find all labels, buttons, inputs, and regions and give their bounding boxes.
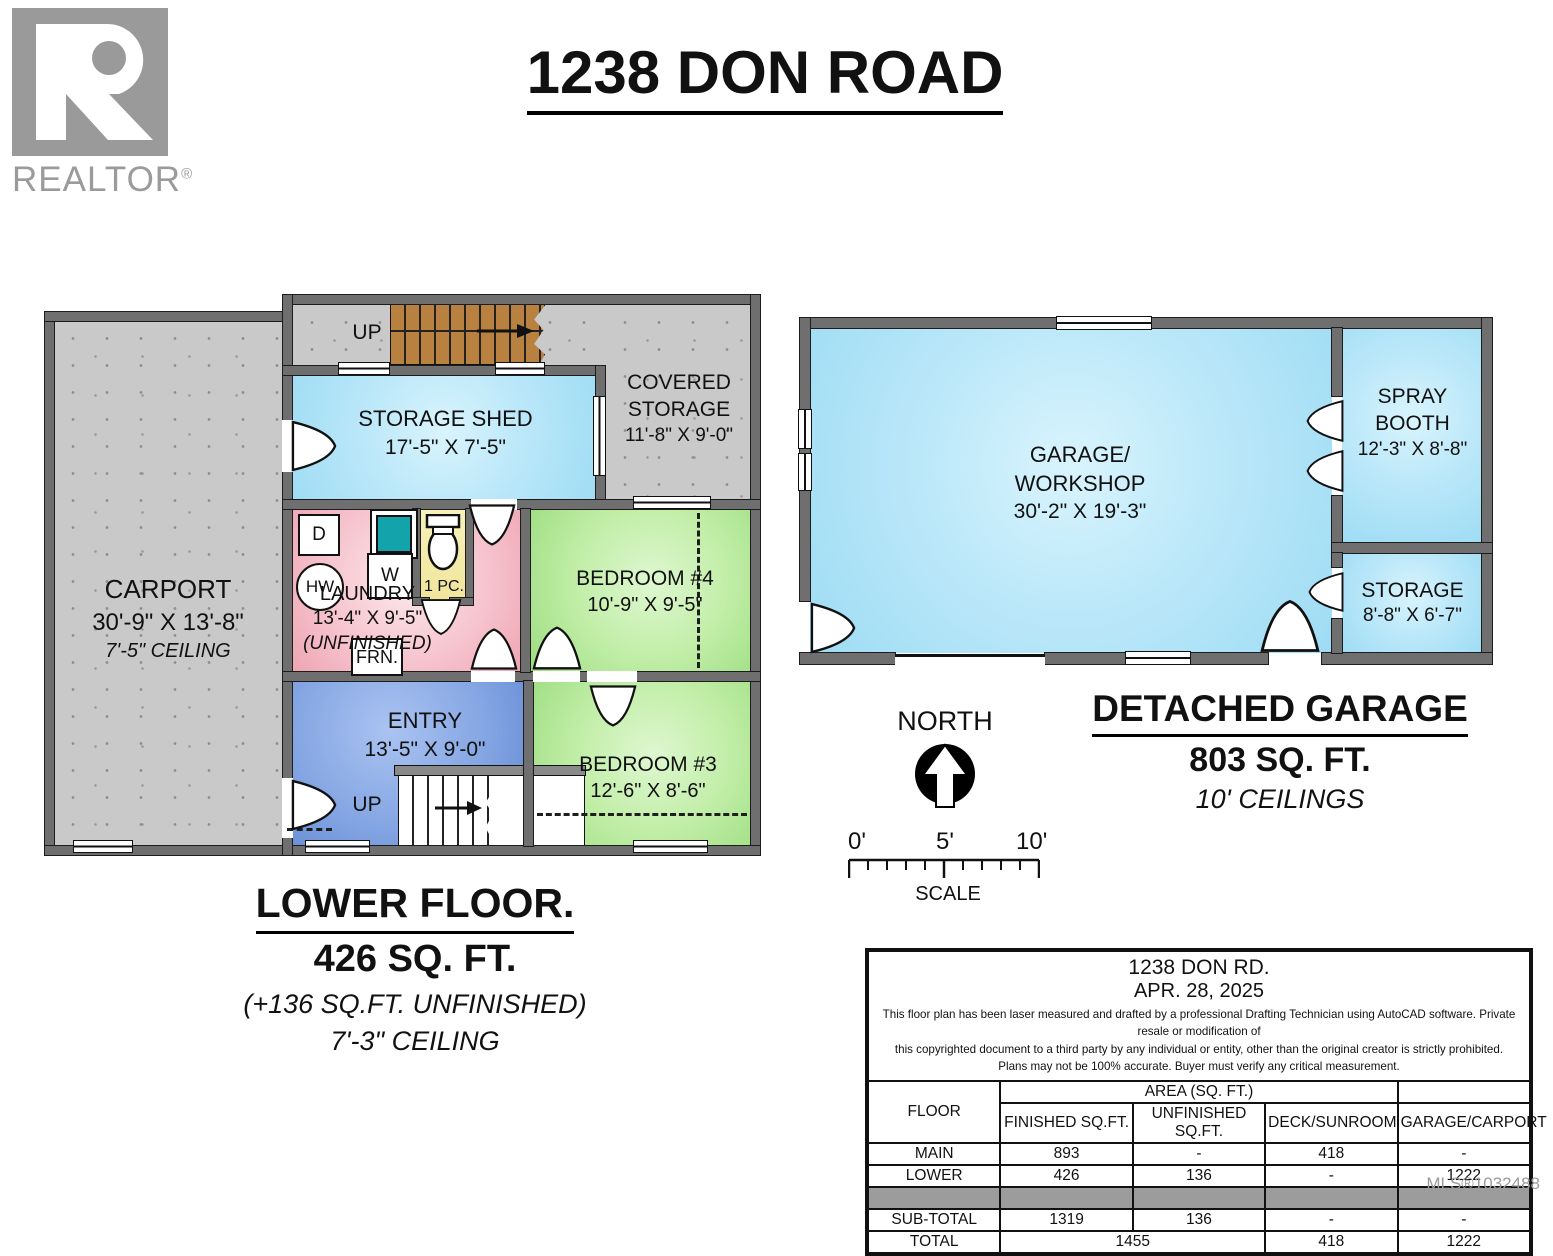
cell-unfinished: - bbox=[1133, 1143, 1265, 1165]
toilet-icon bbox=[424, 514, 462, 576]
window bbox=[798, 409, 812, 449]
cell-deck: - bbox=[1265, 1209, 1397, 1231]
lower-floor-plan: UP UP bbox=[45, 295, 760, 855]
cell-finished: 893 bbox=[1000, 1143, 1132, 1165]
entry-label: ENTRY 13'-5" X 9'-0" bbox=[325, 707, 525, 763]
spacer-cell bbox=[1000, 1187, 1132, 1209]
cell-garage: 1222 bbox=[1398, 1231, 1530, 1253]
dryer-fixture: D bbox=[298, 514, 340, 556]
cell-garage: - bbox=[1398, 1209, 1530, 1231]
col-header-finished: FINISHED SQ.FT. bbox=[1000, 1103, 1132, 1143]
area-table-container: 1238 DON RD. APR. 28, 2025 This floor pl… bbox=[865, 948, 1533, 1256]
north-label: NORTH bbox=[885, 706, 1005, 737]
room-dims: 8'-8" X 6'-7" bbox=[1345, 604, 1480, 629]
scale-bar: 0' 5' 10' SCALE bbox=[848, 828, 1048, 906]
up-text: UP bbox=[352, 793, 381, 816]
row-label: TOTAL bbox=[868, 1231, 1000, 1253]
wall bbox=[521, 509, 530, 672]
wall bbox=[283, 295, 292, 420]
cell-unfinished: 136 bbox=[1133, 1209, 1265, 1231]
storage-shed-label: STORAGE SHED 17'-5" X 7'-5" bbox=[298, 405, 593, 461]
room-name: BOOTH bbox=[1345, 410, 1480, 437]
table-row-main: MAIN 893 - 418 - bbox=[868, 1143, 1530, 1165]
sink-fixture bbox=[376, 515, 412, 553]
dryer-label: D bbox=[312, 524, 326, 546]
room-name: STORAGE SHED bbox=[298, 405, 593, 434]
mls-number: MLS®1032488 bbox=[1340, 1174, 1540, 1194]
garage-workshop-label: GARAGE/ WORKSHOP 30'-2" X 19'-3" bbox=[970, 441, 1190, 525]
table-date: APR. 28, 2025 bbox=[875, 980, 1523, 1003]
bedroom4-label: BEDROOM #4 10'-9" X 9'-5" bbox=[545, 565, 745, 618]
room-name: GARAGE/ bbox=[970, 441, 1190, 470]
caption-ceiling: 10' CEILINGS bbox=[1070, 784, 1490, 815]
wall bbox=[1332, 543, 1492, 553]
room-name: STORAGE bbox=[1345, 577, 1480, 604]
cell-deck: 418 bbox=[1265, 1231, 1397, 1253]
realtor-r-icon bbox=[12, 8, 168, 156]
wall bbox=[45, 312, 292, 321]
door-swing bbox=[469, 502, 515, 548]
door-swing bbox=[810, 601, 856, 655]
table-row-total: TOTAL 1455 418 1222 bbox=[868, 1231, 1530, 1253]
lower-floor-caption: LOWER FLOOR. 426 SQ. FT. (+136 SQ.FT. UN… bbox=[230, 880, 600, 1057]
registered-mark: ® bbox=[181, 165, 193, 182]
room-name: COVERED bbox=[613, 369, 745, 396]
door-opening bbox=[587, 671, 637, 682]
door-swing bbox=[590, 682, 636, 730]
room-name: WORKSHOP bbox=[970, 470, 1190, 499]
window bbox=[495, 362, 545, 375]
wall bbox=[1482, 318, 1492, 664]
room-dims: 12'-6" X 8'-6" bbox=[548, 778, 748, 804]
room-dims: 11'-8" X 9'-0" bbox=[613, 424, 745, 449]
window bbox=[593, 396, 606, 476]
bedroom3-label: BEDROOM #3 12'-6" X 8'-6" bbox=[548, 751, 748, 804]
row-label: SUB-TOTAL bbox=[868, 1209, 1000, 1231]
col-header-unfinished: UNFINISHED SQ.FT. bbox=[1133, 1103, 1265, 1143]
room-dims: 17'-5" X 7'-5" bbox=[298, 434, 593, 461]
scale-ruler bbox=[848, 856, 1040, 878]
door-swing bbox=[533, 625, 581, 671]
wall bbox=[1332, 619, 1342, 653]
stairs-direction-arrow bbox=[435, 800, 483, 816]
room-name: CARPORT bbox=[68, 573, 268, 607]
wall bbox=[283, 838, 292, 855]
disclaimer-line: this copyrighted document to a third par… bbox=[875, 1041, 1523, 1058]
room-note: 7'-5" CEILING bbox=[68, 638, 268, 664]
room-dims: 13'-4" X 9'-5" bbox=[260, 607, 475, 632]
covered-storage-label: COVERED STORAGE 11'-8" X 9'-0" bbox=[613, 369, 745, 448]
row-label: MAIN bbox=[868, 1143, 1000, 1165]
cased-opening-chevron bbox=[1306, 396, 1344, 446]
table-address: 1238 DON RD. bbox=[875, 956, 1523, 980]
wall bbox=[45, 312, 54, 855]
spray-booth-label: SPRAY BOOTH 12'-3" X 8'-8" bbox=[1345, 383, 1480, 462]
garage-plan: GARAGE/ WORKSHOP 30'-2" X 19'-3" SPRAY B… bbox=[800, 313, 1492, 668]
room-dims: 30'-9" X 13'-8" bbox=[68, 607, 268, 638]
window bbox=[305, 840, 370, 853]
bathroom-label: 1 PC. bbox=[419, 577, 469, 598]
door-swing bbox=[291, 777, 337, 833]
cell-finished: 426 bbox=[1000, 1165, 1132, 1187]
caption-ceiling: 7'-3" CEILING bbox=[230, 1026, 600, 1057]
window bbox=[1125, 651, 1191, 665]
window bbox=[798, 453, 812, 491]
up-text: UP bbox=[352, 321, 381, 344]
room-dims: 10'-9" X 9'-5" bbox=[545, 592, 745, 618]
room-name: 1 PC. bbox=[424, 578, 464, 595]
room-name: BEDROOM #4 bbox=[545, 565, 745, 592]
cell-garage: - bbox=[1398, 1143, 1530, 1165]
room-dims: 13'-5" X 9'-0" bbox=[325, 736, 525, 763]
room-name: SPRAY bbox=[1345, 383, 1480, 410]
realtor-logo-text: REALTOR® bbox=[12, 160, 187, 200]
room-name: ENTRY bbox=[325, 707, 525, 736]
room-dims: 12'-3" X 8'-8" bbox=[1345, 438, 1480, 463]
north-arrow-icon bbox=[912, 741, 978, 811]
window bbox=[633, 840, 708, 853]
stairs-direction-arrow bbox=[477, 322, 535, 340]
caption-title: DETACHED GARAGE bbox=[1092, 688, 1468, 737]
disclaimer-line: Plans may not be 100% accurate. Buyer mu… bbox=[875, 1058, 1523, 1075]
window bbox=[338, 362, 390, 375]
row-label: LOWER bbox=[868, 1165, 1000, 1187]
scale-label: SCALE bbox=[848, 883, 1048, 906]
table-title-cell: 1238 DON RD. APR. 28, 2025 This floor pl… bbox=[868, 951, 1530, 1081]
detached-garage-caption: DETACHED GARAGE 803 SQ. FT. 10' CEILINGS bbox=[1070, 688, 1490, 815]
col-group-area: AREA (SQ. FT.) bbox=[1000, 1081, 1397, 1103]
cell-finished: 1319 bbox=[1000, 1209, 1132, 1231]
room-name: BEDROOM #3 bbox=[548, 751, 748, 778]
col-header-deck: DECK/SUNROOM bbox=[1265, 1103, 1397, 1143]
room-dims: 30'-2" X 19'-3" bbox=[970, 498, 1190, 525]
north-compass: NORTH bbox=[885, 706, 1005, 816]
carport-label: CARPORT 30'-9" X 13'-8" 7'-5" CEILING bbox=[68, 573, 268, 664]
col-header-garage: GARAGE/CARPORT bbox=[1398, 1103, 1530, 1143]
spacer-cell bbox=[868, 1187, 1000, 1209]
wall bbox=[1322, 653, 1492, 664]
scale-tick-label: 0' bbox=[848, 828, 866, 856]
wall bbox=[283, 295, 760, 304]
wall bbox=[1332, 328, 1342, 396]
page-title: 1238 DON ROAD bbox=[430, 38, 1100, 115]
up-label-upper: UP bbox=[343, 319, 391, 346]
caption-title: LOWER FLOOR. bbox=[256, 880, 575, 934]
cased-opening-chevron bbox=[1308, 565, 1344, 619]
door-swing bbox=[471, 627, 517, 671]
scale-tick-label: 10' bbox=[1016, 828, 1047, 856]
door-opening bbox=[471, 671, 515, 682]
cell-unfinished: 136 bbox=[1133, 1165, 1265, 1187]
col-header-spacer bbox=[1398, 1081, 1530, 1103]
cell-total-combined: 1455 bbox=[1000, 1231, 1265, 1253]
col-header-floor: FLOOR bbox=[868, 1081, 1000, 1143]
area-table: 1238 DON RD. APR. 28, 2025 This floor pl… bbox=[867, 950, 1531, 1254]
wall bbox=[751, 295, 760, 855]
floor-plan-page: { "page": { "title": "1238 DON ROAD", "m… bbox=[0, 0, 1553, 1200]
caption-area: 803 SQ. FT. bbox=[1070, 741, 1490, 780]
caption-unfinished: (+136 SQ.FT. UNFINISHED) bbox=[230, 989, 600, 1020]
realtor-logo-word: REALTOR bbox=[12, 160, 181, 199]
caption-area: 426 SQ. FT. bbox=[230, 938, 600, 981]
window bbox=[73, 840, 133, 853]
cell-deck: 418 bbox=[1265, 1143, 1397, 1165]
wall bbox=[283, 366, 605, 375]
room-name: STORAGE bbox=[613, 396, 745, 423]
room-note: (UNFINISHED) bbox=[260, 632, 475, 657]
window bbox=[633, 496, 711, 509]
dashed-wall-line bbox=[537, 813, 747, 816]
disclaimer-line: This floor plan has been laser measured … bbox=[875, 1006, 1523, 1041]
spacer-cell bbox=[1133, 1187, 1265, 1209]
realtor-logo: REALTOR® bbox=[12, 8, 182, 208]
up-label-entry: UP bbox=[341, 791, 393, 818]
door-opening bbox=[533, 671, 580, 682]
window bbox=[1056, 316, 1152, 330]
scale-tick-label: 5' bbox=[936, 828, 954, 856]
wall bbox=[524, 681, 533, 846]
table-row-subtotal: SUB-TOTAL 1319 136 - - bbox=[868, 1209, 1530, 1231]
page-title-text: 1238 DON ROAD bbox=[527, 38, 1004, 115]
cased-opening-chevron bbox=[1306, 446, 1344, 496]
wall bbox=[1191, 653, 1268, 664]
garage-door-opening bbox=[895, 654, 1045, 666]
garage-storage-label: STORAGE 8'-8" X 6'-7" bbox=[1345, 577, 1480, 629]
